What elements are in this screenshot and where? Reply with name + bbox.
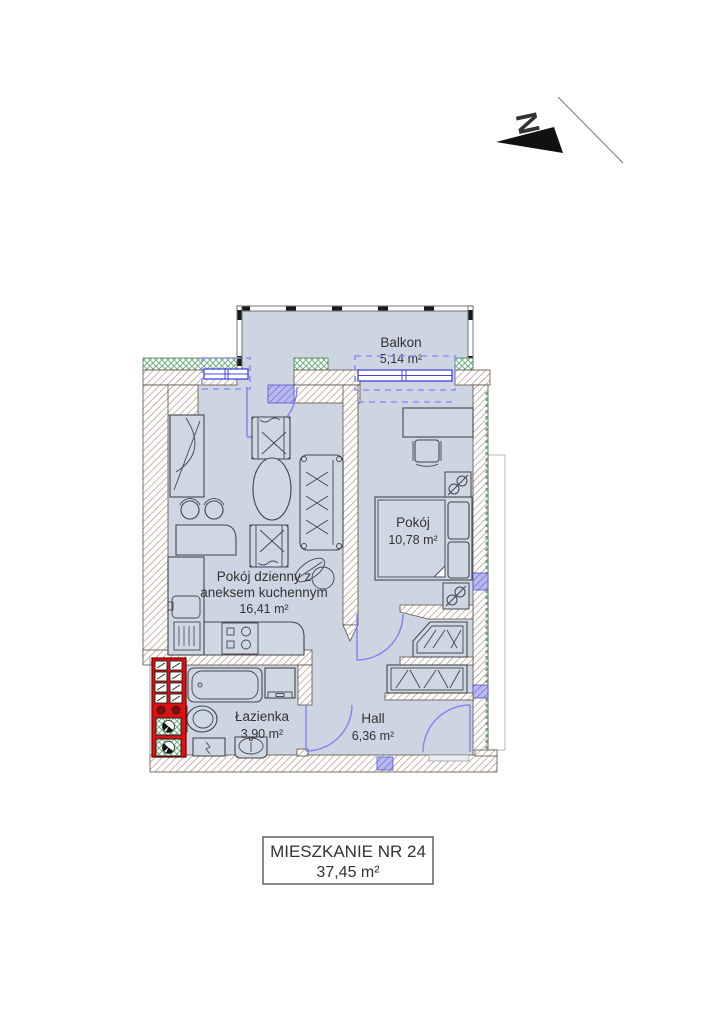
lintel (473, 685, 488, 698)
wall-insulation (294, 358, 328, 370)
bar-stool (181, 501, 199, 519)
lintel (377, 757, 393, 770)
floor-plan-page: N Balkon 5,14 m² (0, 0, 724, 1024)
bathroom-name: Łazienka (235, 709, 290, 724)
desk (403, 408, 473, 437)
pipe-circle (157, 706, 165, 714)
lintel (473, 573, 488, 590)
pipe-circle (172, 706, 180, 714)
armchair (252, 417, 290, 459)
bathtub (188, 668, 262, 702)
installation-shaft (152, 658, 186, 757)
bar-stool (205, 501, 223, 519)
wall-insulation (455, 358, 473, 370)
bedroom-area: 10,78 m² (388, 533, 437, 547)
wall (400, 657, 473, 665)
wall-left (143, 385, 168, 657)
vent-grille (156, 739, 181, 756)
balcony-name: Balkon (380, 335, 421, 350)
oval-table (253, 458, 291, 520)
entry-door-sill (429, 755, 469, 761)
right-outer-shaft (488, 455, 505, 750)
apartment-title: MIESZKANIE NR 24 (270, 842, 426, 861)
bathroom-area: 3,90 m² (241, 727, 283, 741)
living-room-area: 16,41 m² (239, 602, 288, 616)
bedroom-name: Pokój (396, 515, 430, 530)
floor-plan-drawing: N Balkon 5,14 m² (0, 0, 724, 1024)
radiator (445, 472, 471, 498)
wardrobe (170, 415, 204, 497)
hall-area: 6,36 m² (352, 729, 394, 743)
wall (385, 693, 473, 700)
apartment-total-area: 37,45 m² (316, 864, 380, 881)
lintel (268, 385, 294, 403)
title-block: MIESZKANIE NR 24 37,45 m² (263, 837, 433, 884)
washing-machine (265, 668, 295, 698)
pillow (448, 502, 469, 539)
desk-chair (413, 440, 441, 466)
wall-pillar (165, 385, 198, 415)
wardrobe-sliding (387, 665, 467, 693)
wall-bathroom-east (298, 665, 312, 705)
sofa (300, 455, 343, 550)
living-room-name-line2: aneksem kuchennym (200, 585, 328, 600)
wall-insulation (143, 358, 237, 370)
water-heater-unit (193, 738, 225, 756)
wall-divider (343, 385, 358, 625)
radiator (443, 583, 469, 609)
living-room-name-line1: Pokój dzienny z (217, 569, 312, 584)
wall-step (475, 750, 497, 756)
wall (294, 370, 360, 385)
balcony-area: 5,14 m² (380, 352, 422, 366)
hall-name: Hall (361, 711, 384, 726)
wall (455, 370, 490, 385)
vent-grille (156, 718, 181, 735)
north-arrow: N (496, 97, 623, 163)
armchair (250, 525, 288, 567)
pillow (448, 542, 469, 578)
